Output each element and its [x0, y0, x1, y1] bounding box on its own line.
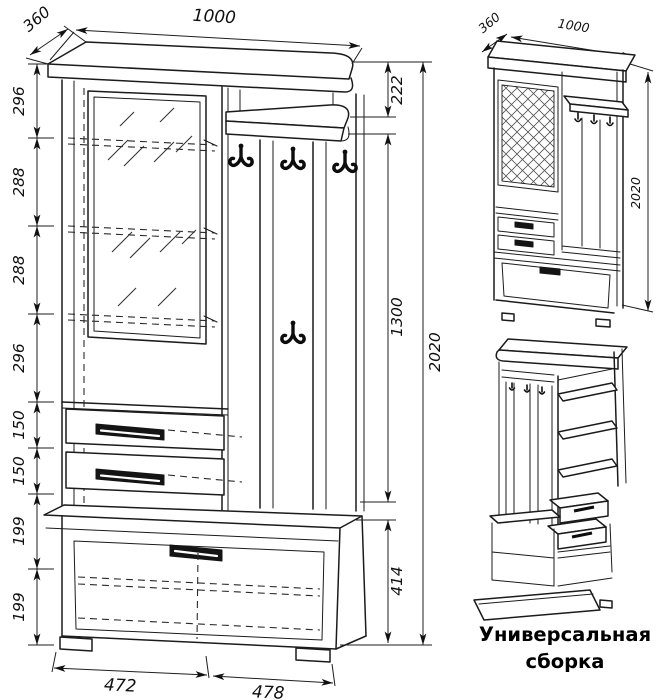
bottom-cabinet [46, 516, 366, 662]
dim-label-depth-top: 360 [20, 3, 54, 36]
coat-hook-4 [282, 321, 304, 343]
furniture-blueprint-page: 1000 360 [0, 0, 665, 700]
isometric-view-front: 360 1000 2020 [475, 9, 653, 327]
iso-dim-height: 2020 [628, 177, 643, 209]
iso-back-foot [600, 600, 612, 608]
iso-foot-left [502, 313, 514, 321]
technical-drawing: 1000 360 [0, 0, 665, 700]
dim-label-296b: 296 [10, 343, 28, 373]
dim-label-296a: 296 [10, 86, 28, 116]
iso-back-shelf-3 [558, 459, 617, 477]
foot-left [60, 637, 92, 651]
iso-back-open-drawer-2 [548, 519, 606, 549]
dim-label-288b: 288 [10, 255, 28, 285]
hook-panel-section [226, 90, 364, 511]
dim-label-width-top: 1000 [192, 6, 236, 29]
dim-label-2020: 2020 [426, 332, 444, 372]
iso-back-shelf-1 [558, 383, 617, 401]
dim-right-chain: 222 1300 414 [340, 62, 432, 645]
iso-back-open-door [474, 590, 600, 620]
iso-foot-right [596, 319, 610, 327]
caption-line-1: Универсальная [479, 623, 651, 646]
coat-hook-3 [334, 150, 356, 172]
dim-left-chain: 296 288 288 296 150 150 199 199 [10, 64, 54, 645]
dim-label-199b: 199 [10, 592, 28, 622]
iso-dim-depth: 360 [475, 9, 503, 36]
dim-label-478: 478 [252, 682, 286, 700]
canopy-shelf [48, 42, 353, 92]
dim-label-222: 222 [388, 75, 406, 105]
foot-right [296, 648, 330, 662]
iso-back-furniture [474, 339, 627, 620]
iso-back-bench [490, 510, 560, 586]
front-elevation-view: 1000 360 [10, 3, 444, 700]
iso-mirror-glass [502, 85, 554, 187]
dim-label-199a: 199 [10, 516, 28, 546]
drawer-block [62, 402, 242, 495]
mirror-door [88, 91, 206, 344]
iso-hat-shelf [564, 96, 628, 117]
bench-seat [44, 505, 362, 528]
coat-hook-2 [282, 147, 304, 169]
iso-front-furniture [488, 41, 635, 327]
dim-label-150b: 150 [10, 456, 28, 486]
caption-line-2: сборка [526, 650, 605, 673]
isometric-view-back [474, 339, 627, 620]
dim-total-height: 2020 [423, 62, 444, 645]
coat-hook-1 [230, 144, 252, 166]
iso-back-shelf-2 [558, 421, 617, 439]
dim-label-1300: 1300 [388, 297, 406, 337]
dim-bottom-widths: 472 478 [52, 652, 335, 700]
dim-label-414: 414 [388, 566, 406, 596]
dim-label-288a: 288 [10, 167, 28, 197]
dim-label-150a: 150 [10, 410, 28, 440]
iso-back-hooks [510, 383, 545, 394]
hat-shelf [226, 105, 349, 141]
iso-dim-width: 1000 [557, 16, 591, 36]
dim-label-472: 472 [104, 675, 137, 696]
